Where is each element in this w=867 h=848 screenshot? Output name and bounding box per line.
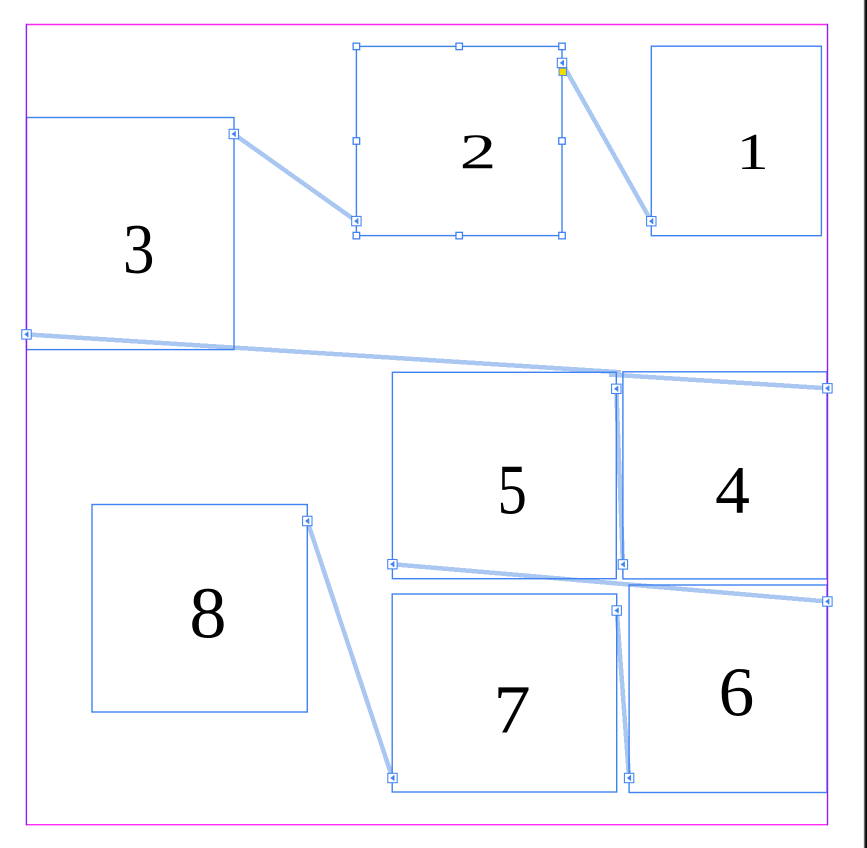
svg-text:3: 3: [123, 210, 155, 289]
svg-text:5: 5: [497, 452, 526, 530]
svg-text:1: 1: [736, 123, 768, 181]
svg-text:2: 2: [460, 123, 497, 179]
svg-text:8: 8: [189, 572, 226, 653]
svg-text:7: 7: [493, 671, 530, 748]
svg-text:6: 6: [719, 654, 755, 731]
svg-text:4: 4: [715, 453, 750, 528]
